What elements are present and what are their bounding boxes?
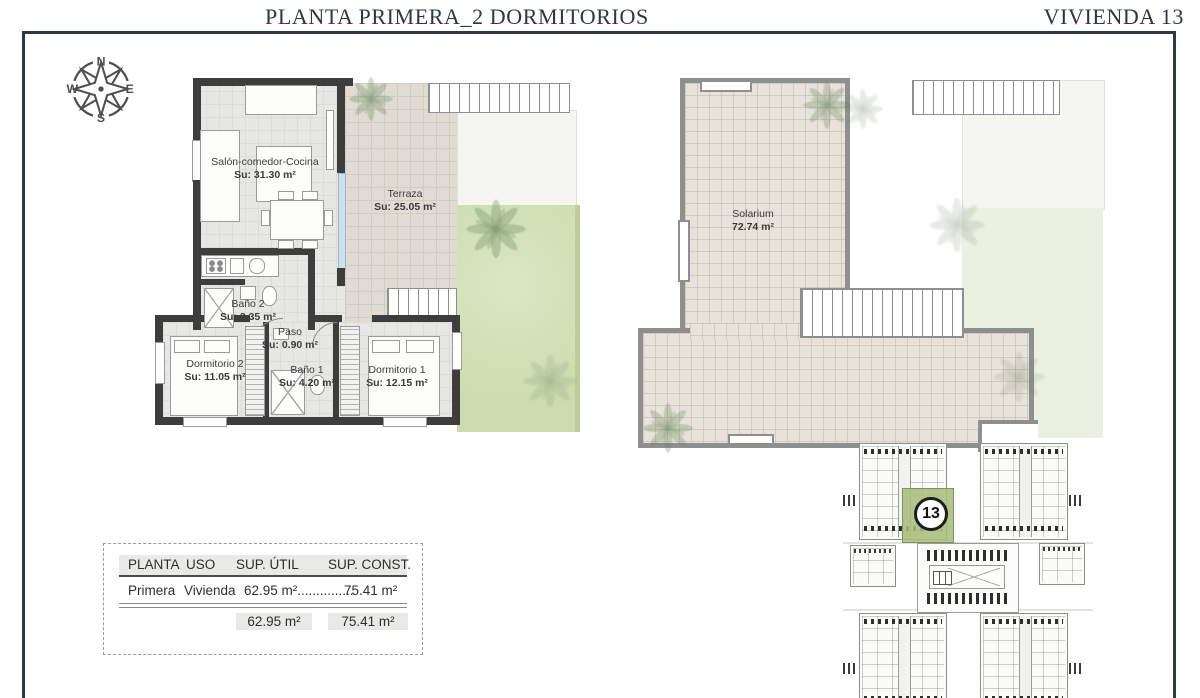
railing xyxy=(700,80,752,92)
plan-sheet: PLANTA PRIMERA_2 DORMITORIOS VIVIENDA 13… xyxy=(0,0,1200,698)
room-label-paso: PasoSu: 0.90 m² xyxy=(240,326,340,352)
chair xyxy=(302,191,318,200)
total-sup-util: 62.95 m² xyxy=(236,613,312,630)
building-block xyxy=(859,613,947,698)
palm-tree-icon xyxy=(465,198,527,260)
wall xyxy=(337,268,345,286)
room-label-bano2: Baño 2Su: 3.35 m² xyxy=(198,298,298,324)
room-label-terraza: TerrazaSu: 25.05 m² xyxy=(355,188,455,214)
railing xyxy=(678,220,690,282)
wall xyxy=(337,78,345,173)
site-key-plan: 13 xyxy=(843,443,1093,698)
wall xyxy=(372,315,460,322)
chair xyxy=(261,210,270,226)
unit-number-badge: 13 xyxy=(914,497,948,531)
compass-rose-icon: N E S W xyxy=(60,48,142,130)
compass-south-label: S xyxy=(97,111,105,125)
room-label-salon: Salón-comedor-CocinaSu: 31.30 m² xyxy=(205,156,325,182)
upper-stairs xyxy=(428,83,570,113)
chair xyxy=(278,191,294,200)
col-header-planta: PLANTA xyxy=(128,557,180,572)
table-separator xyxy=(119,603,407,608)
row-sup-util: 62.95 m²............... xyxy=(244,583,354,598)
room-label-bano1: Baño 1Su: 4.20 m² xyxy=(257,364,357,390)
tree-icon xyxy=(522,353,578,409)
palm-tree-icon xyxy=(348,76,394,122)
tree-icon xyxy=(928,196,986,254)
side-patio xyxy=(457,110,577,207)
window xyxy=(383,417,427,427)
sofa xyxy=(245,85,317,115)
chair xyxy=(302,240,318,249)
dining-table xyxy=(270,200,324,240)
neighbour-stairs xyxy=(912,80,1060,115)
tv-unit xyxy=(326,110,334,170)
apartment-floor-plan: Salón-comedor-CocinaSu: 31.30 m² Terraza… xyxy=(150,70,602,532)
tree-icon xyxy=(842,88,884,130)
kitchen-sink xyxy=(249,258,265,274)
tree-icon xyxy=(992,350,1046,404)
col-header-uso: USO xyxy=(186,557,215,572)
pillow xyxy=(204,340,230,353)
building-block xyxy=(980,613,1068,698)
chair xyxy=(278,240,294,249)
pillow xyxy=(174,340,200,353)
compass-north-label: N xyxy=(97,54,106,68)
room-label-dormitorio2: Dormitorio 2Su: 11.05 m² xyxy=(165,358,265,384)
stair-hatch xyxy=(843,663,858,674)
counter-edge xyxy=(201,279,245,285)
surface-summary-table: PLANTA USO SUP. ÚTIL SUP. CONST. Primera… xyxy=(103,543,423,655)
chair xyxy=(324,210,333,226)
frame-left-rule xyxy=(22,31,25,698)
solarium-wing xyxy=(638,328,1034,448)
compass-east-label: E xyxy=(126,82,134,96)
row-sup-const: 75.41 m² xyxy=(344,583,397,598)
railing xyxy=(728,434,774,445)
central-court xyxy=(917,543,1019,613)
total-sup-const: 75.41 m² xyxy=(328,613,408,630)
frame-right-rule xyxy=(1173,31,1176,698)
window xyxy=(183,417,227,427)
stair-hatch xyxy=(1069,663,1084,674)
room-label-dormitorio1: Dormitorio 1Su: 12.15 m² xyxy=(347,364,447,390)
window xyxy=(452,332,462,370)
building-block xyxy=(980,443,1068,540)
stair-hatch xyxy=(843,495,858,506)
unit-title: VIVIENDA 13 xyxy=(1044,4,1184,30)
stair-hatch xyxy=(1069,495,1084,506)
pillow xyxy=(406,340,434,353)
wall xyxy=(193,248,315,255)
room-label-solarium: Solarium72.74 m² xyxy=(698,208,808,234)
building-block-small xyxy=(1039,543,1085,585)
col-header-sup-const: SUP. CONST. xyxy=(328,557,411,572)
window xyxy=(155,342,165,384)
cooktop xyxy=(206,258,226,274)
window-glazing xyxy=(338,173,346,270)
frame-top-rule xyxy=(22,31,1176,34)
palm-tree-icon xyxy=(642,402,694,454)
oven xyxy=(230,258,244,274)
pool xyxy=(929,565,1005,589)
pillow xyxy=(372,340,400,353)
wall xyxy=(310,315,342,322)
solarium-floor-plan: Solarium72.74 m² xyxy=(630,70,1106,466)
row-planta: Primera xyxy=(128,583,175,598)
compass-west-label: W xyxy=(67,82,79,96)
row-uso: Vivienda xyxy=(184,583,236,598)
col-header-sup-util: SUP. ÚTIL xyxy=(236,557,299,572)
building-block-small xyxy=(850,545,896,587)
page-title: PLANTA PRIMERA_2 DORMITORIOS xyxy=(265,4,649,30)
solarium-stairs xyxy=(800,288,964,338)
